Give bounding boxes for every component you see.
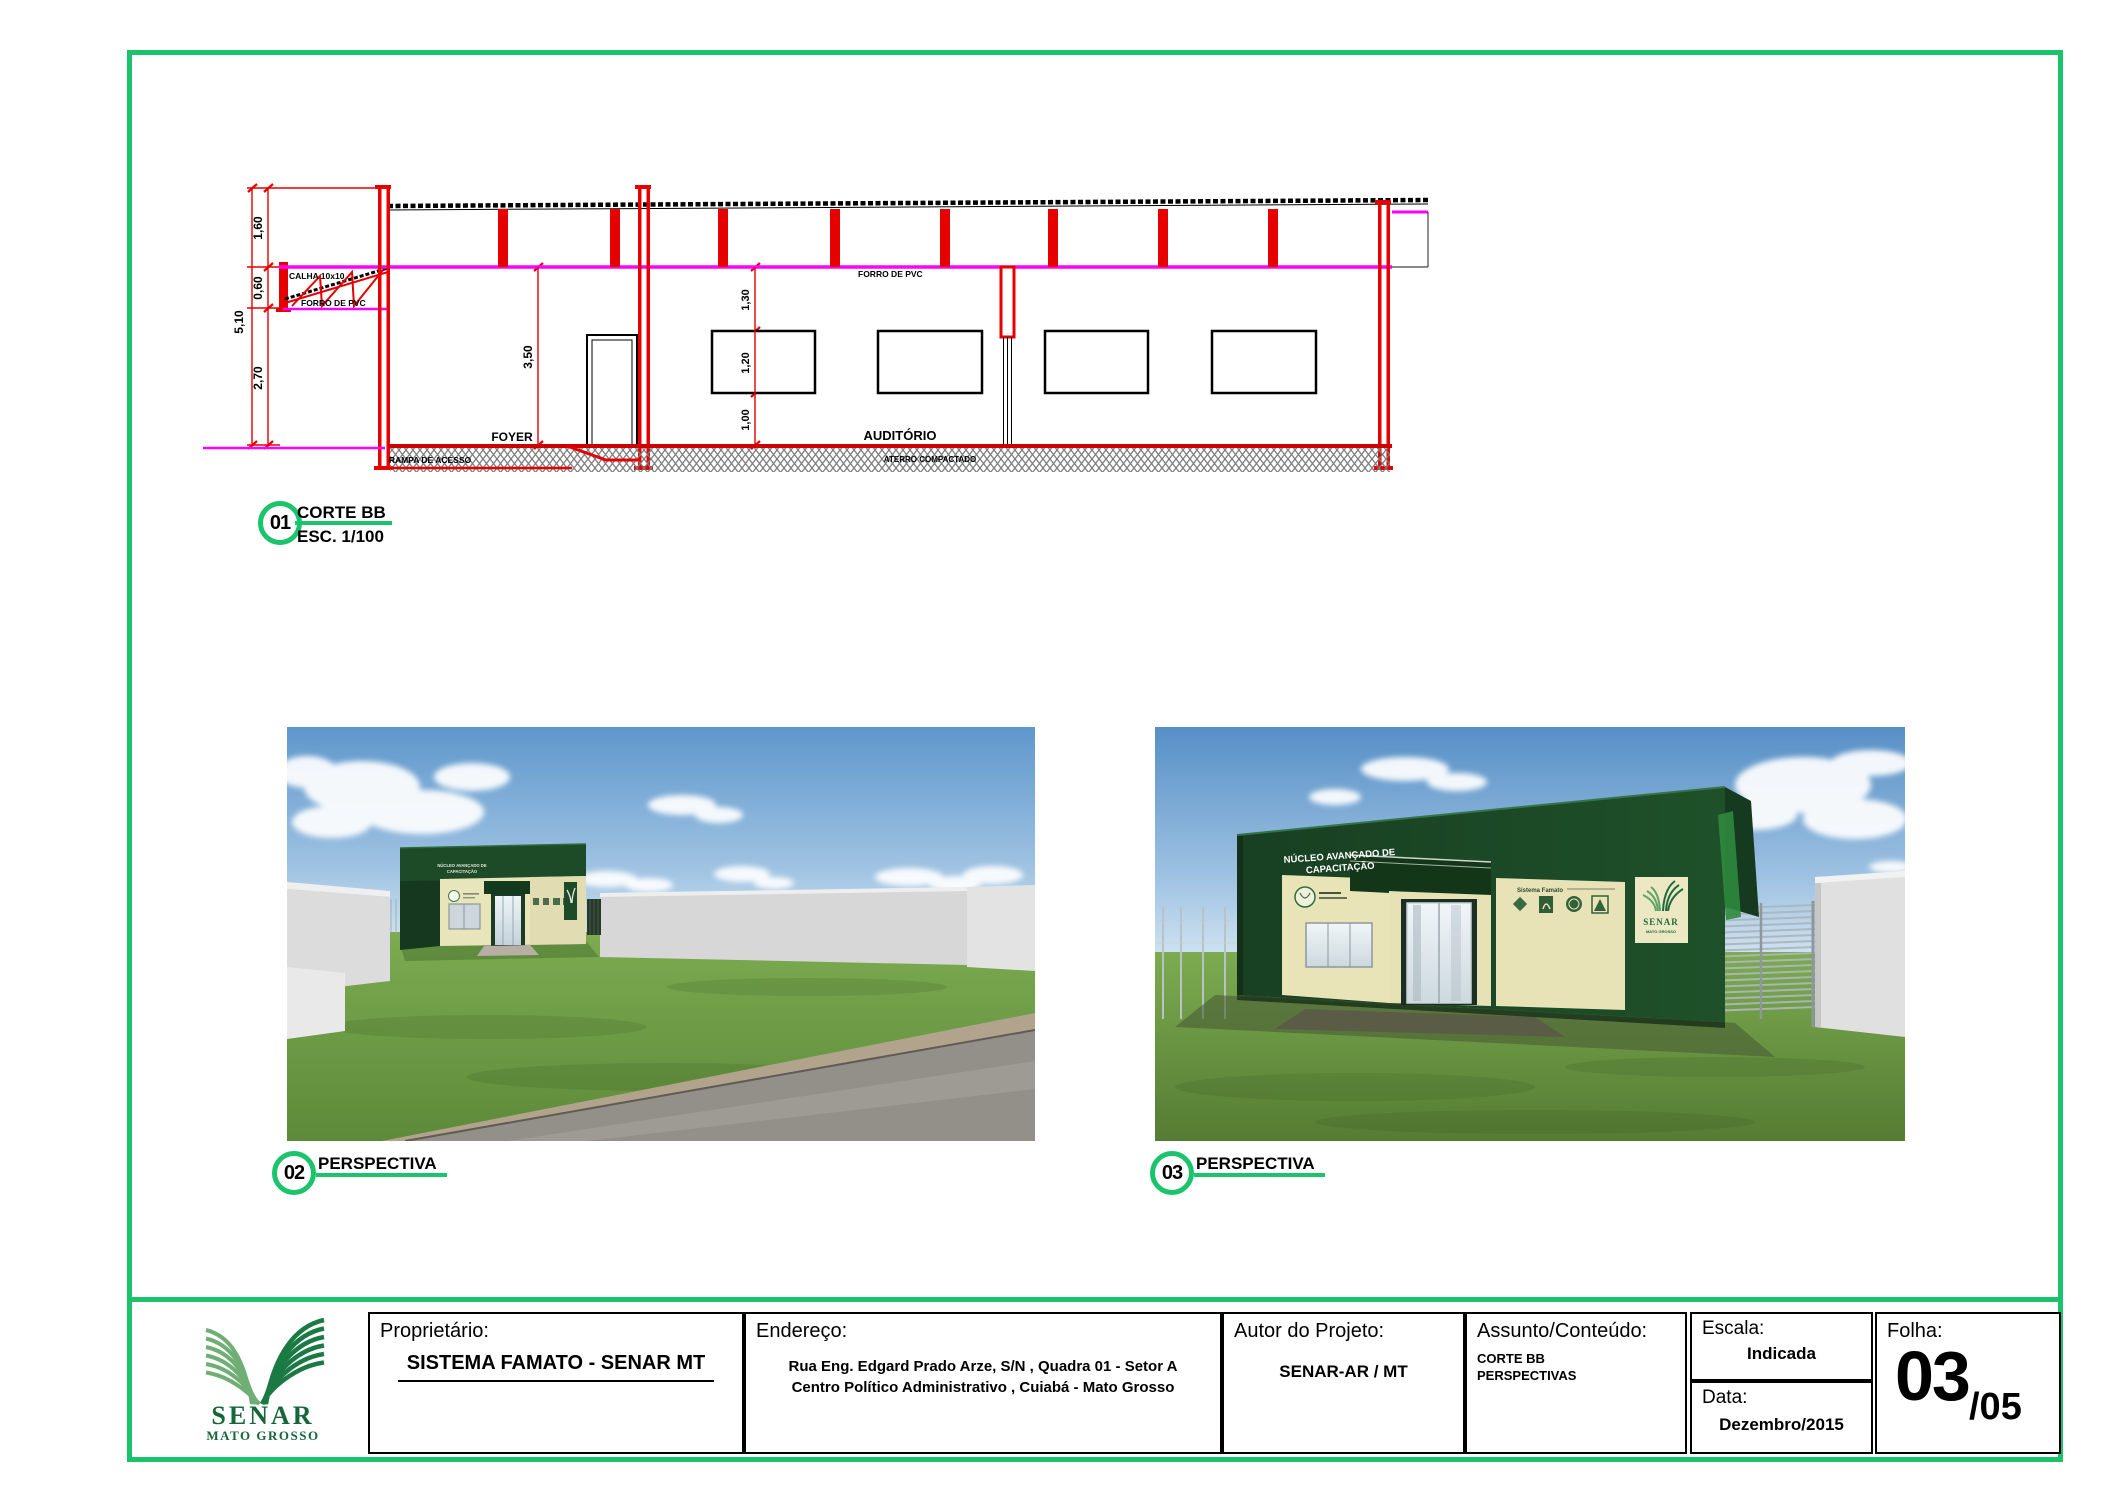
building-sign-line2: CAPACITAÇÃO — [447, 869, 478, 874]
perspective-image-02: NÚCLEO AVANÇADO DE CAPACITAÇÃO — [287, 727, 1035, 1141]
senar-panel-subtitle: MATO GROSSO — [1646, 929, 1676, 934]
label-forro-right: FORRO DE PVC — [858, 269, 923, 279]
gate — [587, 899, 601, 935]
assunto-line2: PERSPECTIVAS — [1477, 1367, 1576, 1384]
proprietario-label: Proprietário: — [380, 1320, 489, 1343]
callout-03-badge: 03 — [1150, 1151, 1194, 1195]
left-wall — [374, 185, 393, 470]
endereco-line1: Rua Eng. Edgard Prado Arze, S/N , Quadra… — [746, 1356, 1220, 1377]
folha-total: /05 — [1969, 1386, 2022, 1429]
logos-caption: Sistema Famato — [1517, 888, 1563, 894]
corte-bb-section-drawing: 5,10 1,60 0,60 2,70 CALHA 10x10 FORRO DE… — [150, 110, 1570, 500]
callout-02-underline — [316, 1173, 447, 1177]
senar-logo: SENAR MATO GROSSO — [178, 1316, 348, 1444]
dim-100: 1,00 — [740, 409, 752, 430]
field-folha: Folha: 03 /05 — [1875, 1312, 2061, 1454]
dim-130: 1,30 — [740, 289, 752, 310]
callout-03-underline — [1194, 1173, 1325, 1177]
right-boundary-wall — [1815, 871, 1905, 1037]
right-roof-step — [1392, 212, 1428, 267]
perspective-02-title: PERSPECTIVA — [318, 1154, 437, 1174]
perspective-image-03: Sistema Famato — [1155, 727, 1905, 1141]
section-title: CORTE BB — [297, 503, 386, 523]
senar-panel-title: SENAR — [1643, 917, 1679, 927]
logo-region: MATO GROSSO — [206, 1428, 319, 1443]
label-auditorio: AUDITÓRIO — [864, 428, 937, 443]
building-sign-line1: NÚCLEO AVANÇADO DE — [437, 863, 486, 868]
callout-03-number: 03 — [1162, 1162, 1182, 1185]
label-foyer: FOYER — [491, 430, 533, 444]
right-wall — [1374, 200, 1393, 470]
dim-160: 1,60 — [251, 216, 265, 240]
logo-left-arcs — [206, 1330, 260, 1404]
field-autor: Autor do Projeto: SENAR-AR / MT — [1222, 1312, 1465, 1454]
logo-name: SENAR — [211, 1401, 314, 1430]
dim-total: 5,10 — [232, 310, 246, 334]
proprietario-value: SISTEMA FAMATO - SENAR MT — [370, 1352, 742, 1375]
endereco-line2: Centro Político Administrativo , Cuiabá … — [746, 1377, 1220, 1398]
dim-120: 1,20 — [740, 352, 752, 373]
foyer-door — [587, 335, 637, 445]
label-rampa: RAMPA DE ACESSO — [389, 455, 472, 465]
autor-value: SENAR-AR / MT — [1224, 1362, 1463, 1382]
endereco-label: Endereço: — [756, 1320, 847, 1343]
label-forro-left: FORRO DE PVC — [301, 298, 366, 308]
building: NÚCLEO AVANÇADO DE CAPACITAÇÃO — [400, 844, 599, 961]
autor-label: Autor do Projeto: — [1234, 1320, 1384, 1343]
senar-sign-panel: SENAR MATO GROSSO — [1635, 877, 1688, 943]
dim-270: 2,70 — [251, 366, 265, 390]
callout-01-underline — [295, 521, 392, 525]
callout-01-number: 01 — [270, 512, 290, 535]
label-aterro: ATERRO COMPACTADO — [884, 455, 976, 464]
logo-right-arcs — [262, 1320, 324, 1404]
auditorium-door — [1001, 267, 1014, 445]
proprietario-underline — [398, 1380, 714, 1382]
data-label: Data: — [1702, 1387, 1747, 1409]
callout-02-number: 02 — [284, 1162, 304, 1185]
data-value: Dezembro/2015 — [1692, 1415, 1871, 1435]
roof-columns — [498, 209, 1278, 267]
assunto-label: Assunto/Conteúdo: — [1477, 1320, 1647, 1343]
field-endereco: Endereço: Rua Eng. Edgard Prado Arze, S/… — [744, 1312, 1222, 1454]
folha-number: 03 — [1895, 1336, 1969, 1416]
right-boundary-wall — [600, 885, 1035, 971]
field-escala: Escala: Indicada — [1690, 1312, 1873, 1381]
escala-value: Indicada — [1692, 1344, 1871, 1364]
label-calha: CALHA 10x10 — [289, 271, 345, 281]
section-scale: ESC. 1/100 — [297, 527, 384, 547]
title-block-separator — [127, 1297, 2063, 1302]
drawing-sheet: 5,10 1,60 0,60 2,70 CALHA 10x10 FORRO DE… — [0, 0, 2117, 1497]
auditorium-windows — [712, 331, 1316, 393]
field-data: Data: Dezembro/2015 — [1690, 1381, 1873, 1454]
assunto-line1: CORTE BB — [1477, 1350, 1576, 1367]
escala-label: Escala: — [1702, 1318, 1764, 1340]
perspective-03-title: PERSPECTIVA — [1196, 1154, 1315, 1174]
left-dimension-lines — [247, 188, 378, 445]
field-assunto: Assunto/Conteúdo: CORTE BB PERSPECTIVAS — [1465, 1312, 1687, 1454]
field-proprietario: Proprietário: SISTEMA FAMATO - SENAR MT — [368, 1312, 744, 1454]
callout-02-badge: 02 — [272, 1151, 316, 1195]
dim-060: 0,60 — [251, 276, 265, 300]
dim-350: 3,50 — [521, 345, 535, 369]
